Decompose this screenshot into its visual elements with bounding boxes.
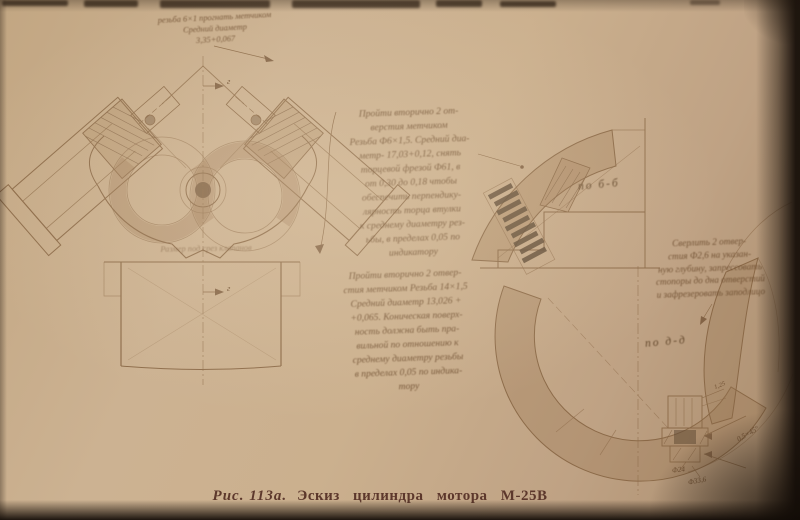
annotation-retap-upper: Пройти вторично 2 от- верстия метчиком Р…: [333, 103, 488, 262]
section-mark-g-bottom: г: [227, 283, 230, 293]
figure-caption-number: Рис. 113а.: [213, 488, 288, 504]
annotation-drill-stoppers: Сверлить 2 отвер- стия Ф2,6 на указан- н…: [623, 233, 797, 303]
annotation-retap-lower: Пройти вторично 2 отвер- стия метчиком Р…: [314, 265, 500, 397]
section-mark-g-top: г: [227, 76, 230, 86]
figure-caption: Рис. 113а.Эскиз цилиндра мотора М-25В: [0, 488, 760, 505]
page-photo: резьба 6×1 прогнать метчиком Средний диа…: [0, 0, 800, 520]
figure-caption-title: Эскиз цилиндра мотора М-25В: [297, 488, 547, 504]
dim-diameter-24: Ф24: [672, 465, 686, 474]
